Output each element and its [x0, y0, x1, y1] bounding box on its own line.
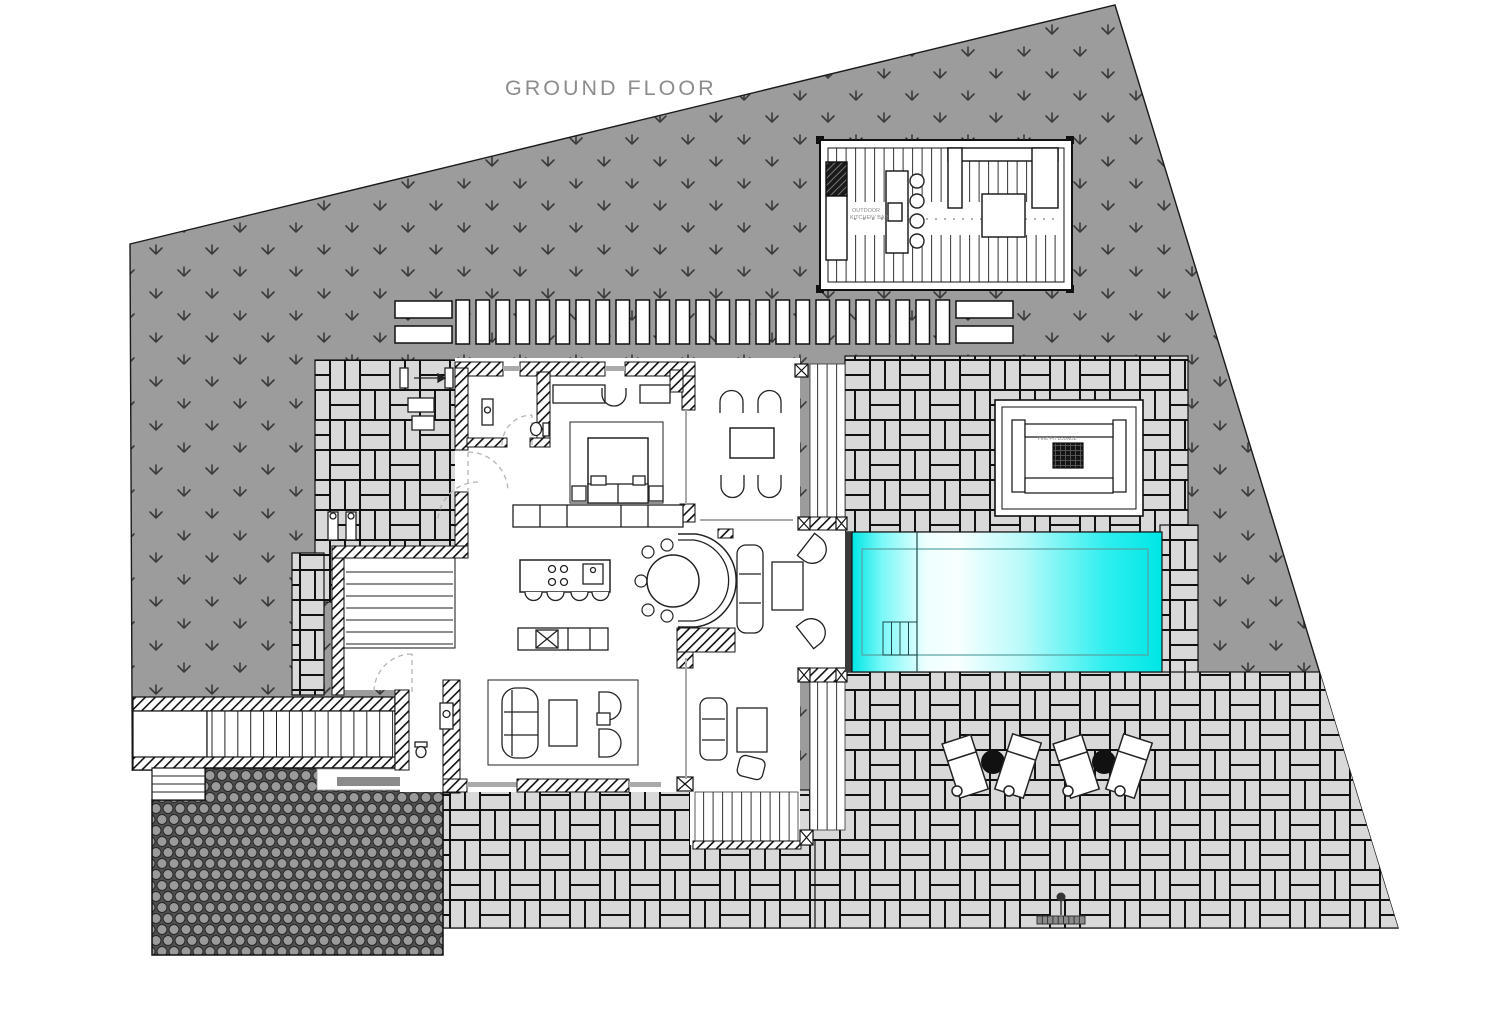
fire-pit-label: FIRE PIT LOUNGE	[1038, 436, 1077, 441]
interior-stair	[344, 558, 455, 648]
outdoor-kitchen-label-1: OUTDOOR	[852, 208, 880, 214]
boardwalk	[395, 300, 1013, 344]
cobblestone-court	[152, 768, 443, 955]
site-edge-mask	[118, 771, 152, 1010]
sideboard	[518, 628, 608, 650]
floor-plan-canvas: OUTDOOR KITCHEN/ BAR FIRE PIT LOUNGE GRO…	[0, 0, 1500, 1010]
floor-plan-drawing: OUTDOOR KITCHEN/ BAR FIRE PIT LOUNGE GRO…	[0, 0, 1500, 1010]
outdoor-kitchen-label-2: KITCHEN/ BAR	[850, 215, 889, 221]
fire-pit-lounge: FIRE PIT LOUNGE	[995, 400, 1143, 516]
page-title: GROUND FLOOR	[505, 76, 717, 100]
living-room-set	[488, 680, 638, 765]
bedroom-set	[570, 422, 663, 503]
exterior-stairs	[133, 697, 410, 770]
outdoor-kitchen-deck: OUTDOOR KITCHEN/ BAR	[816, 136, 1074, 293]
swimming-pool	[845, 532, 1162, 672]
